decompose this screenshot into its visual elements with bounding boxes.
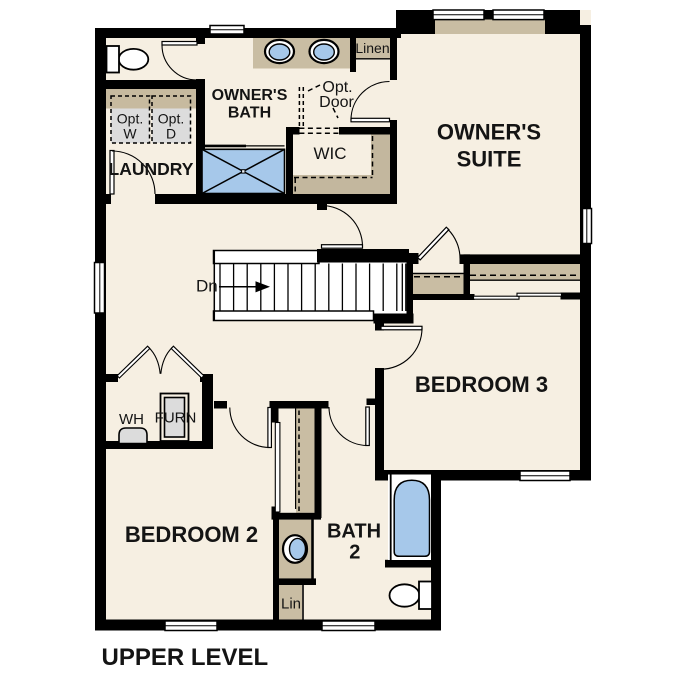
svg-text:BEDROOM 3: BEDROOM 3 bbox=[415, 372, 548, 397]
svg-text:BEDROOM 2: BEDROOM 2 bbox=[125, 522, 258, 547]
svg-text:BATH: BATH bbox=[327, 521, 381, 543]
svg-text:Linen: Linen bbox=[355, 40, 389, 56]
svg-text:OWNER'S: OWNER'S bbox=[437, 120, 541, 145]
svg-text:Door: Door bbox=[319, 94, 354, 111]
svg-text:Dn: Dn bbox=[196, 277, 218, 296]
svg-text:UPPER LEVEL: UPPER LEVEL bbox=[102, 644, 269, 671]
svg-text:2: 2 bbox=[349, 542, 360, 564]
svg-text:WIC: WIC bbox=[313, 144, 346, 163]
svg-text:OWNER'S: OWNER'S bbox=[212, 87, 288, 104]
svg-text:Lin: Lin bbox=[281, 596, 301, 613]
svg-text:D: D bbox=[166, 126, 176, 142]
svg-text:Opt.: Opt. bbox=[158, 111, 184, 127]
svg-text:Opt.: Opt. bbox=[117, 111, 143, 127]
svg-text:W: W bbox=[123, 126, 137, 142]
svg-text:BATH: BATH bbox=[228, 105, 271, 122]
svg-text:WH: WH bbox=[119, 411, 144, 428]
svg-text:FURN: FURN bbox=[155, 410, 197, 427]
svg-text:LAUNDRY: LAUNDRY bbox=[109, 159, 194, 179]
svg-text:SUITE: SUITE bbox=[457, 147, 522, 172]
